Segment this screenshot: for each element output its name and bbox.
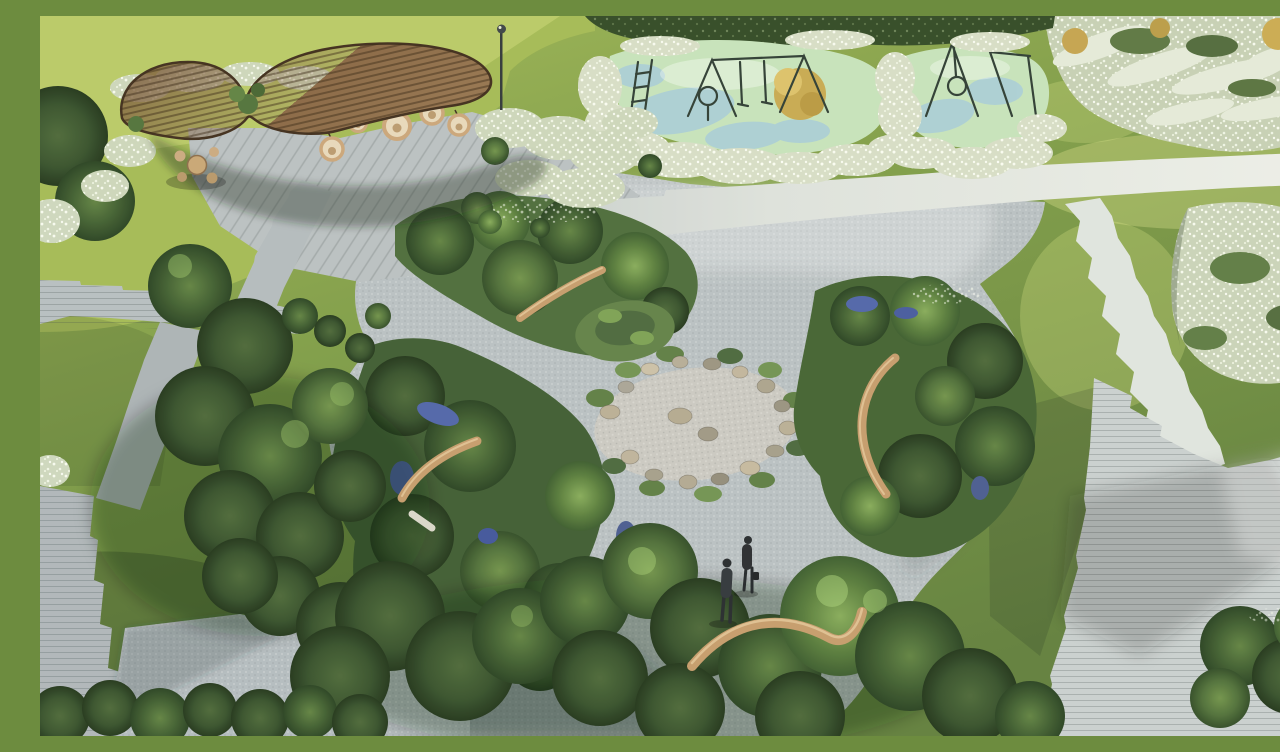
garden-rendering: Bird's-eye rendering of a community gard…	[40, 16, 1280, 736]
scene-svg	[40, 16, 1280, 736]
light-wash	[40, 16, 1280, 736]
